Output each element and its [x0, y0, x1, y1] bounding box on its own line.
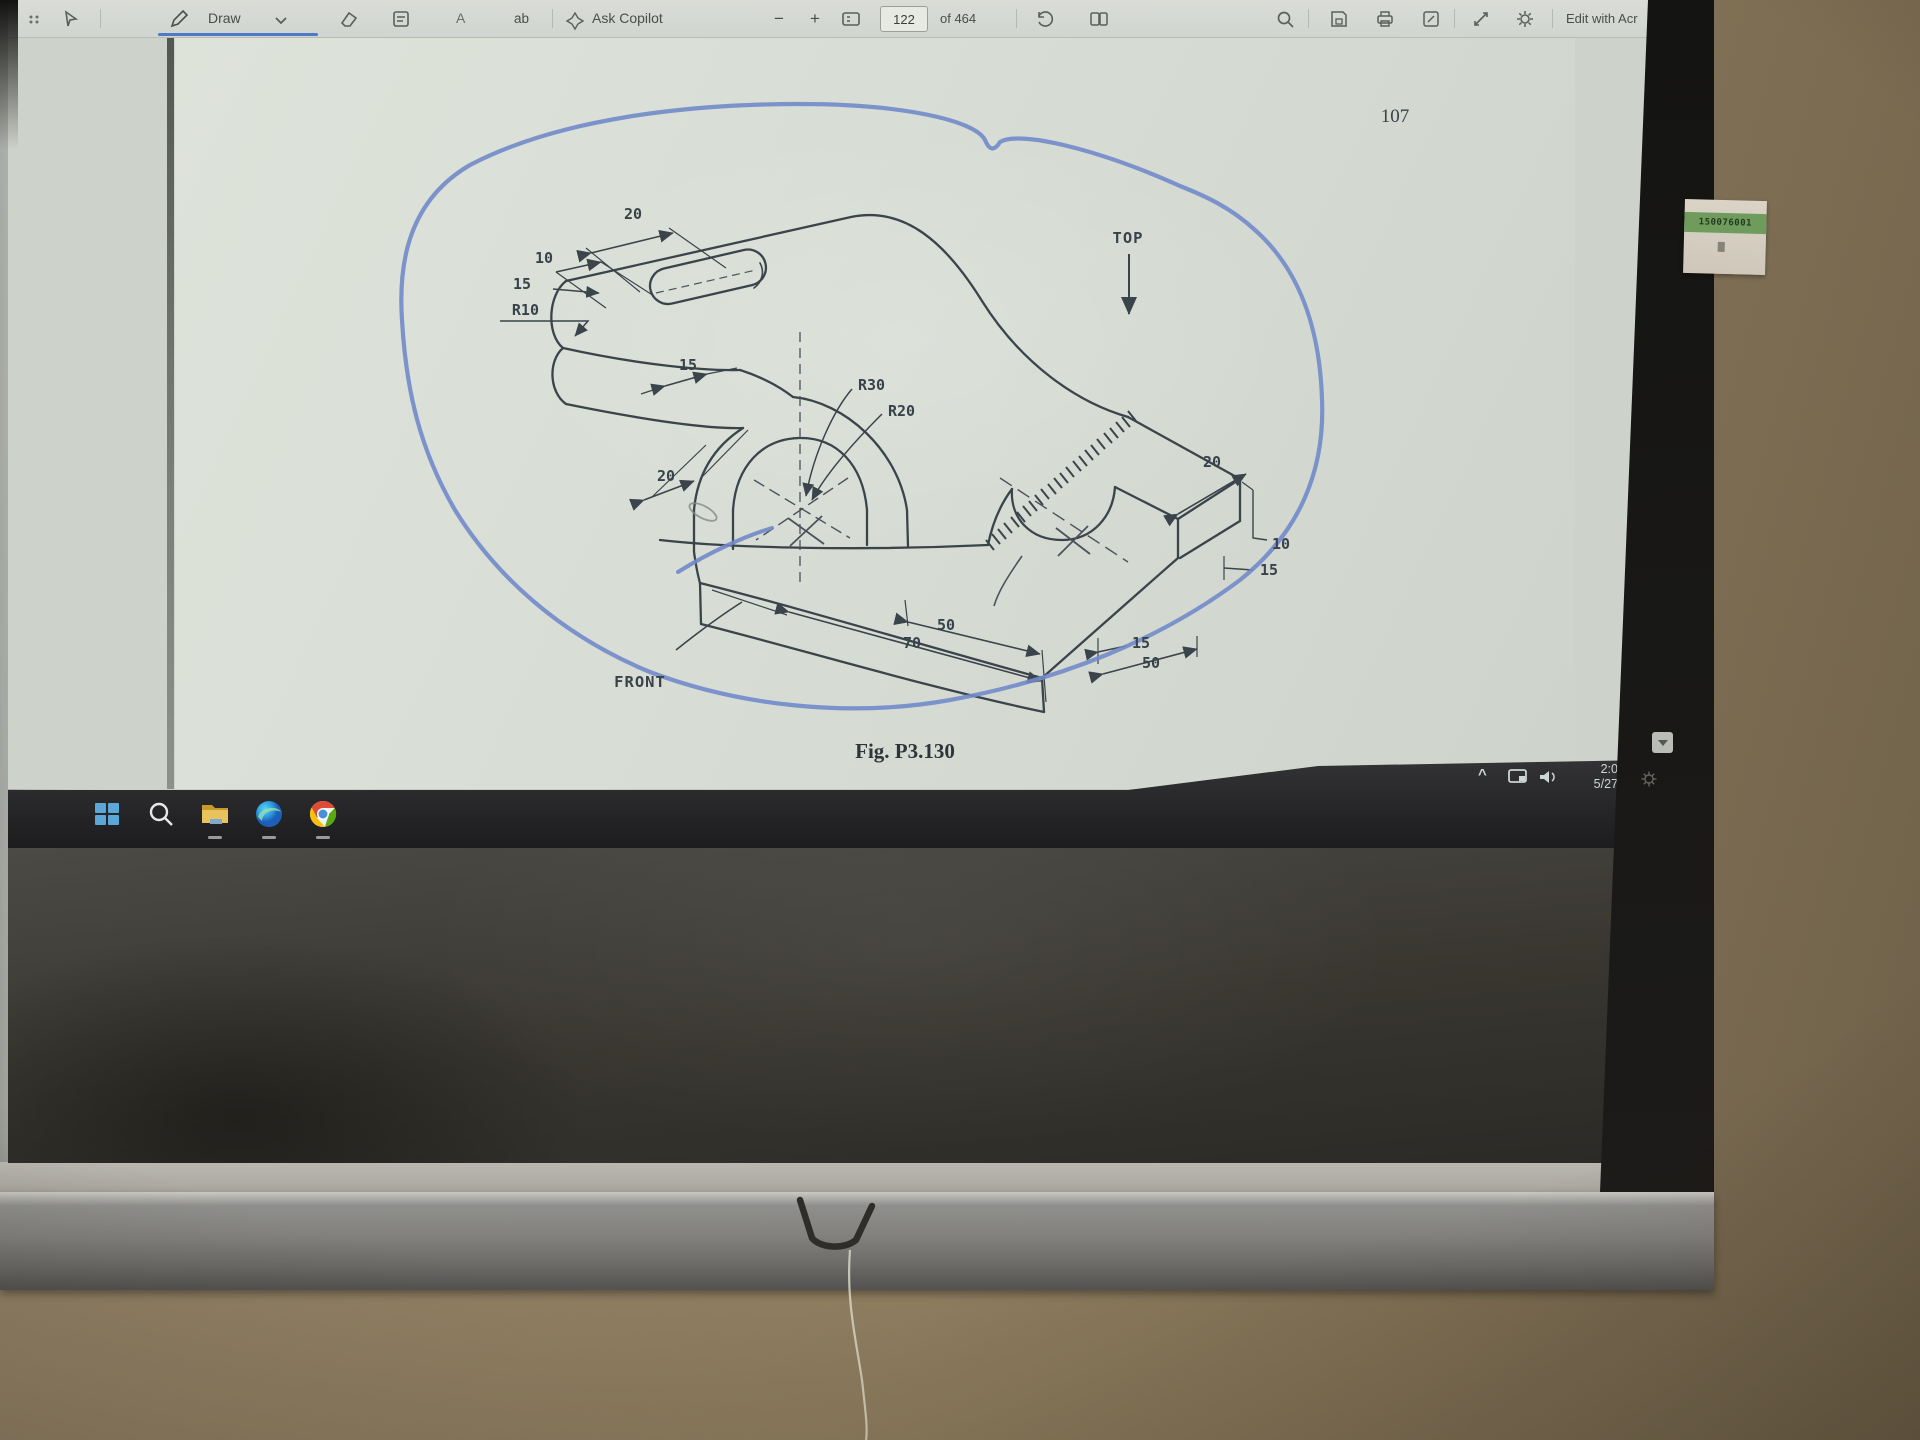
tray-time: 2:0 — [1562, 762, 1618, 777]
pdf-page-edge-shadow — [167, 37, 174, 789]
unlit-screen-area — [8, 847, 1650, 1163]
toolbar-separator — [1454, 9, 1455, 28]
add-text-icon[interactable]: A — [456, 0, 465, 37]
read-aloud-button[interactable]: ab — [514, 0, 529, 37]
chrome-icon[interactable] — [306, 797, 340, 831]
pdf-page — [175, 37, 1575, 789]
page-count-label: of 464 — [940, 0, 976, 37]
edit-with-acrobat-button[interactable]: Edit with Acr — [1566, 0, 1638, 37]
fullscreen-icon[interactable] — [1470, 8, 1492, 30]
page-number-input[interactable] — [880, 6, 928, 32]
start-button[interactable] — [90, 797, 124, 831]
scrollbar-down-button[interactable] — [1652, 732, 1673, 753]
zoom-out-button[interactable]: − — [774, 0, 784, 37]
copilot-icon[interactable] — [564, 10, 586, 32]
toolbar-separator — [1016, 9, 1017, 28]
tray-chevron-up-icon[interactable]: ^ — [1478, 766, 1487, 783]
annotate-icon[interactable] — [1420, 8, 1442, 30]
toolbar-separator — [1308, 9, 1309, 28]
draw-button[interactable]: Draw — [208, 0, 241, 37]
toolbar-separator — [552, 9, 553, 28]
edge-icon[interactable] — [252, 797, 286, 831]
running-indicator — [208, 836, 222, 839]
tray-clock[interactable]: 2:0 5/27 — [1562, 762, 1618, 792]
chevron-down-icon[interactable] — [270, 10, 292, 32]
search-icon[interactable] — [1274, 8, 1296, 30]
eraser-icon[interactable] — [338, 8, 360, 30]
edge-gear-icon — [1640, 770, 1658, 793]
select-tool-icon[interactable] — [60, 8, 82, 30]
classroom-photo: Draw A ab Ask Copilot − + of 464 — [0, 0, 1920, 1440]
sticker-digits: 150076001 — [1699, 217, 1753, 228]
pdf-toolbar: Draw A ab Ask Copilot − + of 464 — [8, 0, 1650, 38]
running-indicator — [316, 836, 330, 839]
screen-bottom-bar — [0, 1192, 1714, 1290]
sticker-mark — [1718, 242, 1725, 252]
search-taskbar-icon[interactable] — [144, 797, 178, 831]
tray-display-icon[interactable] — [1508, 769, 1528, 790]
page-view-icon[interactable] — [1088, 8, 1110, 30]
running-indicator — [262, 836, 276, 839]
ask-copilot-button[interactable]: Ask Copilot — [592, 0, 663, 37]
text-highlight-icon[interactable] — [390, 8, 412, 30]
draw-active-underline — [158, 33, 318, 36]
sticker-barcode-band: 150076001 — [1684, 212, 1766, 234]
zoom-in-button[interactable]: + — [810, 0, 820, 37]
save-icon[interactable] — [1328, 8, 1350, 30]
screen-bottom-fabric — [0, 1162, 1714, 1192]
projection-corner-shadow — [0, 0, 18, 150]
settings-gear-icon[interactable] — [1514, 8, 1536, 30]
menu-dots-icon[interactable] — [24, 8, 46, 30]
file-explorer-icon[interactable] — [198, 797, 232, 831]
scroll-down-icon — [1658, 740, 1668, 746]
print-icon[interactable] — [1374, 8, 1396, 30]
toolbar-separator — [100, 9, 101, 28]
wall-asset-sticker: 150076001 — [1683, 199, 1767, 275]
draw-pen-icon[interactable] — [168, 8, 190, 30]
rotate-icon[interactable] — [1034, 8, 1056, 30]
tray-date: 5/27 — [1562, 777, 1618, 792]
fit-page-icon[interactable] — [840, 8, 862, 30]
tray-speaker-icon[interactable] — [1538, 769, 1558, 790]
toolbar-separator — [1552, 9, 1553, 28]
